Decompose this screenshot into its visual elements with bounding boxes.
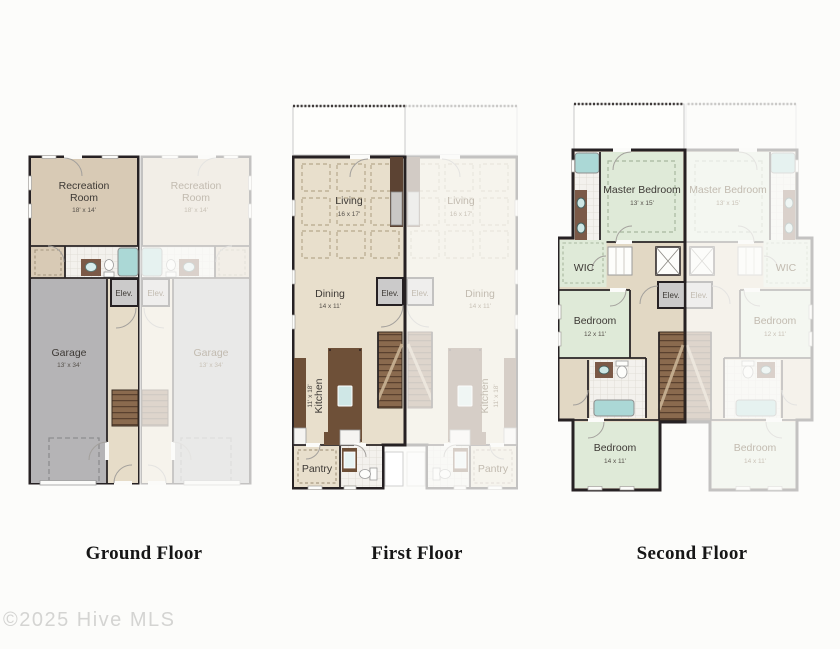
first-floor-plan: Living 16 x 17' Dining 14 x 11' Kitchen … [292, 100, 518, 500]
bathtub [575, 153, 599, 173]
room-label-dining: Dining [315, 288, 345, 300]
sink [86, 263, 97, 272]
toilet [617, 366, 627, 378]
room-dims-living: 16 x 17' [338, 211, 361, 218]
room-label-elevator: Elev. [115, 289, 132, 298]
faded-room-label-recreation: Recreation [171, 180, 222, 192]
room-dims-garage: 13' x 34' [57, 362, 81, 369]
room-label-master-bedroom: Master Bedroom [603, 184, 681, 196]
floor-title-first: First Floor [371, 543, 462, 565]
faded-room-label-bedroom-lower: Bedroom [734, 442, 777, 454]
floor-title-second: Second Floor [637, 543, 748, 565]
garage [31, 279, 107, 483]
room-label-garage: Garage [51, 347, 86, 359]
balcony [574, 104, 684, 151]
floor-plan-sheet: Recreation Room 18' x 14' Garage 13' x 3… [0, 0, 840, 649]
faded-room-label-living: Living [447, 195, 475, 207]
room-label-bedroom-lower: Bedroom [594, 442, 637, 454]
faded-room-dims-dining: 14 x 11' [469, 303, 491, 310]
faded-room-label-elevator: Elev. [690, 291, 707, 300]
room-label-pantry: Pantry [302, 463, 333, 475]
linen-shelves [608, 247, 632, 275]
bathtub [594, 400, 634, 416]
ground-stairs [112, 390, 138, 426]
room-dims-kitchen: 11' x 18' [307, 384, 314, 407]
faded-room-label-elevator: Elev. [411, 289, 428, 298]
faded-room-label-elevator: Elev. [147, 289, 164, 298]
room-label-kitchen: Kitchen [313, 378, 325, 413]
room-dims-dining: 14 x 11' [319, 303, 341, 310]
room-dims-bedroom-mid: 12 x 11' [584, 331, 606, 338]
sink [577, 223, 585, 233]
faded-room-label-bedroom-mid: Bedroom [754, 315, 797, 327]
room-label-elevator: Elev. [381, 289, 398, 298]
faded-room-dims-bedroom-lower: 14 x 11' [744, 458, 766, 465]
ground-unit-geometry [29, 155, 139, 485]
toilet [360, 470, 371, 479]
room-label-bedroom-mid: Bedroom [574, 315, 617, 327]
faded-room-label-recreation-2: Room [182, 192, 210, 204]
faded-room-label-wic: WIC [776, 262, 797, 274]
room-label-wic: WIC [574, 262, 595, 274]
faded-room-dims-bedroom-mid: 12 x 11' [764, 331, 786, 338]
faded-room-label-kitchen: Kitchen [479, 378, 491, 413]
bedroom-lower [575, 422, 659, 488]
room-dims-recreation: 18' x 14' [72, 207, 96, 214]
room-dims-bedroom-lower: 14 x 11' [604, 458, 626, 465]
fridge-cabinet [324, 432, 340, 445]
island-sink [338, 386, 352, 406]
laundry-closet [560, 360, 588, 418]
faded-room-label-pantry: Pantry [478, 463, 509, 475]
ground-faded-mirror-unit [142, 155, 252, 485]
faded-room-dims-garage: 13' x 34' [199, 362, 223, 369]
faded-room-dims-living: 16 x 17' [450, 211, 473, 218]
bathtub [118, 248, 138, 276]
porch-step [385, 452, 403, 486]
kitchen-counter [294, 358, 306, 428]
mls-watermark: ©2025 Hive MLS [3, 609, 175, 632]
room-label-recreation-2: Room [70, 192, 98, 204]
faded-room-dims-recreation: 18' x 14' [184, 207, 208, 214]
second-floor-plan: Master Bedroom 13' x 15' WIC Bedroom 12 … [558, 100, 814, 500]
ground-floor-plan: Recreation Room 18' x 14' Garage 13' x 3… [28, 100, 256, 500]
ground-hall [107, 279, 138, 483]
toilet [105, 260, 114, 271]
sink [577, 198, 585, 208]
room-dims-master-bedroom: 13' x 15' [630, 200, 654, 207]
faded-room-label-master-bedroom: Master Bedroom [689, 184, 767, 196]
faded-room-dims-kitchen: 11' x 18' [493, 384, 500, 407]
master-bedroom [600, 152, 683, 242]
room-label-elevator: Elev. [662, 291, 679, 300]
faded-room-dims-master-bedroom: 13' x 15' [716, 200, 740, 207]
balcony [293, 106, 405, 155]
floor-title-ground: Ground Floor [86, 543, 203, 565]
faded-room-label-garage: Garage [193, 347, 228, 359]
room-label-living: Living [335, 195, 363, 207]
room-label-recreation: Recreation [59, 180, 110, 192]
range [294, 428, 306, 446]
faded-room-label-dining: Dining [465, 288, 495, 300]
garage-door [40, 481, 96, 486]
